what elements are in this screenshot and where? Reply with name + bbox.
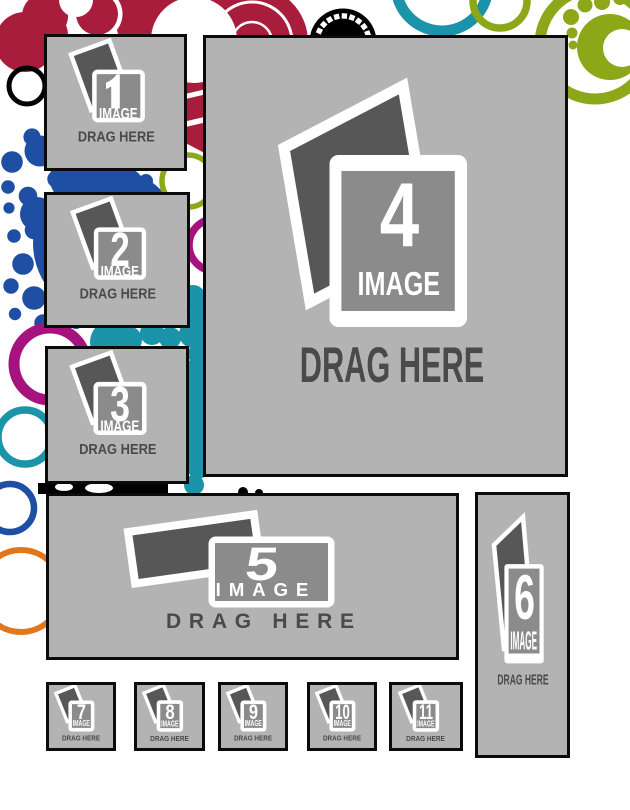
- svg-text:DRAG HERE: DRAG HERE: [150, 736, 189, 743]
- svg-text:IMAGE: IMAGE: [99, 105, 138, 122]
- svg-text:IMAGE: IMAGE: [244, 720, 261, 728]
- svg-text:DRAG HERE: DRAG HERE: [497, 670, 548, 687]
- svg-text:IMAGE: IMAGE: [333, 720, 350, 728]
- svg-text:DRAG HERE: DRAG HERE: [80, 286, 156, 302]
- svg-text:DRAG HERE: DRAG HERE: [233, 735, 272, 742]
- svg-text:4: 4: [379, 165, 418, 266]
- svg-text:IMAGE: IMAGE: [101, 263, 139, 280]
- svg-text:DRAG HERE: DRAG HERE: [78, 128, 155, 144]
- svg-text:DRAG HERE: DRAG HERE: [299, 336, 483, 393]
- svg-text:DRAG HERE: DRAG HERE: [62, 735, 101, 742]
- svg-text:DRAG HERE: DRAG HERE: [79, 441, 156, 457]
- svg-text:DRAG HERE: DRAG HERE: [166, 609, 354, 632]
- svg-text:IMAGE: IMAGE: [357, 265, 440, 302]
- svg-text:IMAGE: IMAGE: [417, 720, 435, 728]
- svg-text:DRAG HERE: DRAG HERE: [406, 736, 445, 743]
- svg-text:IMAGE: IMAGE: [100, 417, 139, 434]
- svg-text:IMAGE: IMAGE: [161, 720, 179, 728]
- svg-text:IMAGE: IMAGE: [73, 720, 90, 728]
- svg-text:IMAGE: IMAGE: [510, 626, 537, 656]
- svg-text:6: 6: [514, 562, 535, 633]
- svg-text:DRAG HERE: DRAG HERE: [322, 735, 361, 742]
